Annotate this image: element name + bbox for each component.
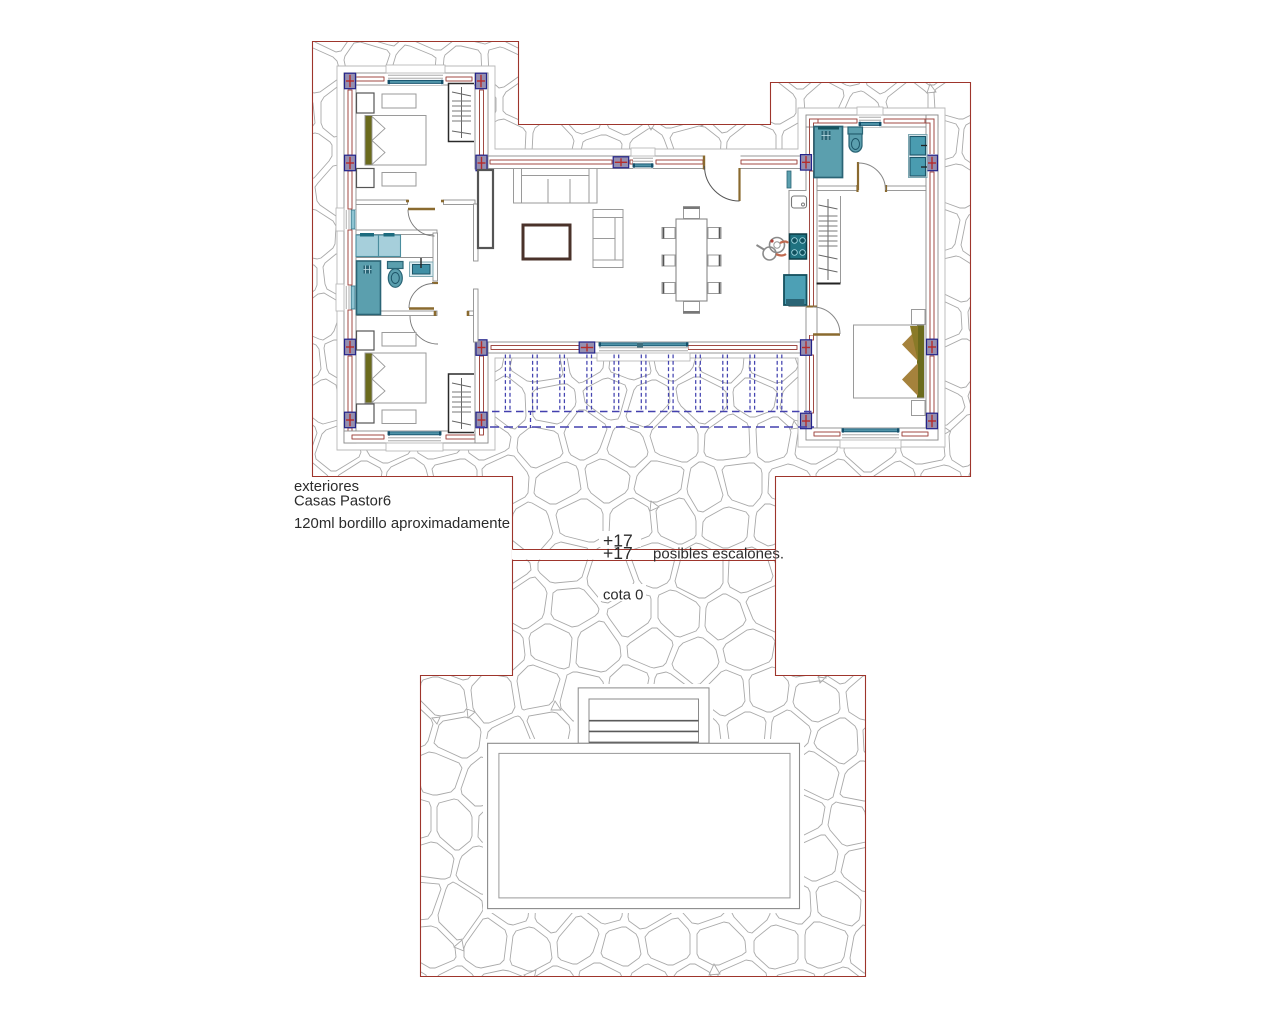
svg-text:Casas Pastor6: Casas Pastor6 [294,494,391,510]
svg-text:posibles escalones.: posibles escalones. [653,547,784,563]
svg-text:cota 0: cota 0 [603,588,643,604]
svg-text:120ml bordillo aproximadamente: 120ml bordillo aproximadamente [294,516,510,532]
svg-text:+17: +17 [603,543,633,563]
